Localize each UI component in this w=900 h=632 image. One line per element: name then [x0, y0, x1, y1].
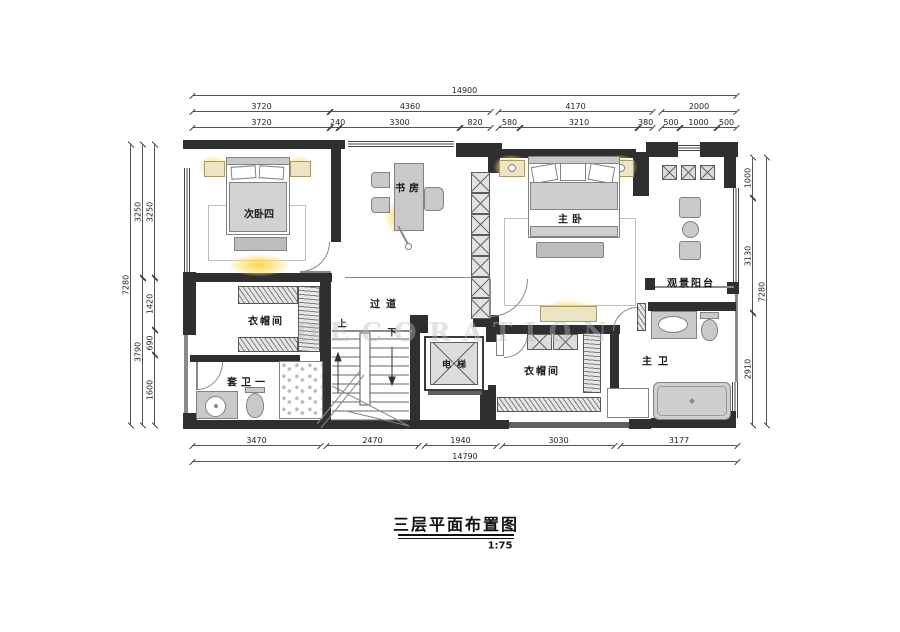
wall-segment — [629, 419, 651, 429]
dim-text: 1000 — [744, 168, 753, 188]
wall-segment — [183, 140, 345, 149]
dim-text: 1420 — [146, 294, 155, 314]
nightstand — [290, 161, 311, 177]
dim-text: 2910 — [744, 359, 753, 379]
stool — [679, 197, 701, 218]
dim-text: 1940 — [425, 436, 496, 445]
dim-bottom-total: 14790 — [193, 461, 737, 462]
window-symbol — [184, 168, 190, 272]
dim-text: 14790 — [193, 452, 737, 461]
wall-segment — [724, 155, 736, 188]
dim-text: 3250 — [146, 201, 155, 221]
cabinet-strip — [471, 172, 490, 319]
room-label-cloakroom-master: 衣帽间 — [524, 363, 560, 378]
dim-top-r2: 4170 — [499, 111, 652, 112]
wall-segment — [488, 385, 496, 421]
dim-text: 2000 — [662, 102, 736, 111]
dim-text: 4170 — [499, 102, 652, 111]
dim-text: 3030 — [503, 436, 614, 445]
room-label-cloakroom-west: 衣帽间 — [248, 313, 284, 328]
wardrobe — [238, 286, 298, 304]
dim-right-inner: 1000 — [752, 158, 753, 198]
dim-text: 3130 — [744, 245, 753, 265]
dim-top-r3: 820 — [460, 127, 490, 128]
room-label-elevator: 电梯 — [442, 358, 472, 371]
dim-top-r3: 580 — [499, 127, 520, 128]
dim-top-r3: 3210 — [520, 127, 638, 128]
chair — [371, 197, 390, 213]
floor-lamp-glow — [229, 254, 289, 276]
title-underline — [398, 538, 514, 539]
wardrobe — [238, 337, 298, 352]
dim-bottom: 1940 — [425, 445, 496, 446]
sink-faucet — [214, 404, 218, 408]
dim-text: 1600 — [146, 380, 155, 400]
dim-text: 690 — [146, 335, 155, 350]
dim-text: 3720 — [193, 118, 330, 127]
dim-text: 3790 — [134, 341, 143, 361]
shower — [607, 388, 649, 418]
plant — [700, 165, 715, 180]
dim-right-inner: 3130 — [752, 198, 753, 313]
dim-bottom: 3470 — [193, 445, 320, 446]
toilet-bowl — [246, 393, 264, 418]
dim-text: 240 — [330, 118, 339, 127]
chair — [371, 172, 390, 188]
dim-top-r3: 3720 — [193, 127, 330, 128]
dim-text: 3210 — [520, 118, 638, 127]
dim-left-mid: 3250 — [142, 145, 143, 278]
dim-left-total: 7280 — [130, 145, 131, 425]
dim-top-r2: 3720 — [193, 111, 330, 112]
wall-line — [184, 335, 188, 415]
cabinet-cell — [471, 298, 490, 319]
bed-bench — [234, 237, 287, 251]
floor-plan: 14900 3720 4360 4170 2000 3720 240 3300 … — [0, 0, 900, 632]
wall-segment — [700, 142, 722, 157]
plant — [681, 165, 696, 180]
wall-segment — [645, 278, 655, 290]
dim-text: 1000 — [680, 118, 717, 127]
dim-top-r3: 380 — [638, 127, 652, 128]
bed-bench — [536, 242, 604, 258]
toilet-tank — [700, 312, 719, 319]
desk-lamp — [405, 243, 412, 250]
dim-left-inner: 3250 — [154, 145, 155, 278]
dim-top-r3: 3300 — [339, 127, 460, 128]
dim-text: 3177 — [621, 436, 737, 445]
dim-right-inner: 2910 — [752, 313, 753, 425]
door-arc — [197, 362, 223, 390]
door-arc — [490, 279, 528, 317]
drawing-scale: 1:75 — [488, 541, 513, 552]
room-label-bedroom4: 次卧四 — [244, 206, 274, 221]
dim-top-r3: 500 — [717, 127, 736, 128]
dim-top-r3: 1000 — [680, 127, 717, 128]
stool — [679, 241, 701, 260]
dim-left-mid: 3790 — [142, 278, 143, 425]
dim-text: 14900 — [193, 86, 736, 95]
dim-text: 500 — [662, 118, 680, 127]
cabinet-cell — [471, 193, 490, 214]
dim-top-r2: 2000 — [662, 111, 736, 112]
wall-segment — [648, 302, 736, 311]
cabinet-cell — [471, 235, 490, 256]
pillow — [231, 165, 257, 180]
nightstand — [204, 161, 225, 177]
side-table — [682, 221, 699, 238]
dim-left-inner: 1420 — [154, 278, 155, 330]
window-symbol — [678, 145, 700, 151]
dim-text: 2470 — [327, 436, 418, 445]
door-arc — [300, 242, 330, 272]
cabinet-cell — [471, 277, 490, 298]
dim-top-r2: 4360 — [330, 111, 490, 112]
toilet-bowl — [701, 319, 718, 341]
dim-text: 3470 — [193, 436, 320, 445]
dim-right-total: 7280 — [766, 158, 767, 425]
office-chair — [424, 187, 444, 211]
bed-headboard — [226, 157, 290, 165]
cabinet-cell — [471, 256, 490, 277]
table-lamp — [508, 164, 516, 172]
wall-segment — [727, 282, 739, 294]
dim-text: 580 — [499, 118, 520, 127]
plant — [662, 165, 677, 180]
room-label-master-bedroom: 主卧 — [558, 211, 586, 226]
pillow — [259, 165, 285, 180]
dim-text: 4360 — [330, 102, 490, 111]
dim-text: 7280 — [122, 275, 131, 295]
room-label-study: 书房 — [395, 180, 423, 195]
room-label-corridor: 过道 — [370, 296, 402, 311]
window-symbol — [348, 141, 454, 147]
dim-text: 380 — [638, 118, 652, 127]
cabinet-cell — [471, 214, 490, 235]
window-symbol — [733, 188, 739, 282]
dim-text: 820 — [460, 118, 490, 127]
dim-text: 7280 — [758, 281, 767, 301]
dim-text: 3250 — [134, 201, 143, 221]
dim-text: 3720 — [193, 102, 330, 111]
drawing-title: 三层平面布置图 — [393, 511, 519, 535]
bed-blanket — [530, 226, 618, 237]
dim-top-total: 14900 — [193, 95, 736, 96]
vanity-basin — [658, 316, 688, 333]
cabinet-cell — [471, 172, 490, 193]
title-underline — [398, 534, 514, 536]
dim-bottom: 3030 — [503, 445, 614, 446]
room-label-master-bath: 主卫 — [642, 353, 674, 368]
wall-segment — [509, 422, 629, 428]
door-leaf — [637, 303, 646, 331]
dim-left-inner: 1600 — [154, 355, 155, 425]
bed-blanket — [530, 182, 618, 210]
desk — [394, 163, 424, 231]
dim-text: 3300 — [339, 118, 460, 127]
pillow — [560, 163, 586, 181]
watermark: DECORATION — [295, 318, 619, 348]
wardrobe — [497, 397, 601, 412]
dim-text: 500 — [717, 118, 736, 127]
dim-bottom: 3177 — [621, 445, 737, 446]
wall-segment — [646, 142, 678, 157]
wall-line — [345, 277, 488, 278]
dim-bottom: 2470 — [327, 445, 418, 446]
room-label-balcony: 观景阳台 — [667, 275, 715, 290]
wall-segment — [331, 140, 341, 242]
dim-left-inner: 690 — [154, 330, 155, 355]
